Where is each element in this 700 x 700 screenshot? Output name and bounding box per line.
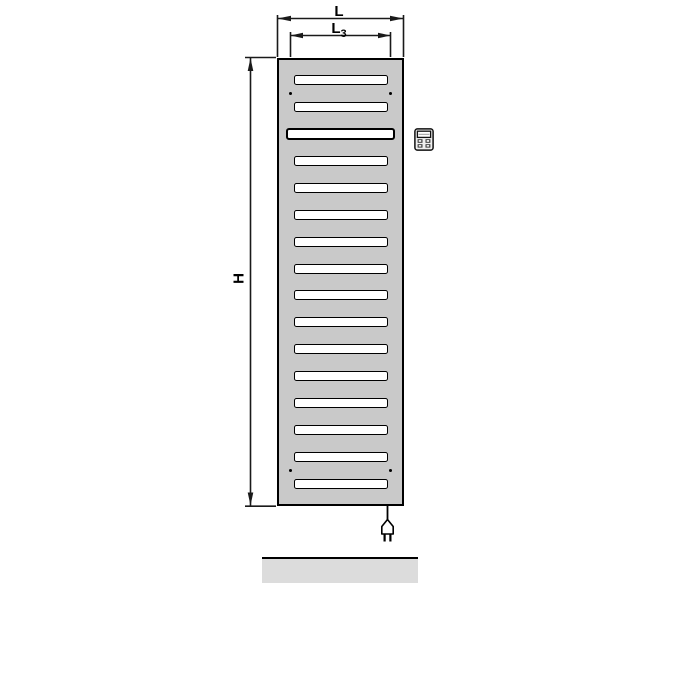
radiator-slot xyxy=(294,210,388,220)
dim-label-overall-height: H xyxy=(232,266,247,292)
radiator-slot xyxy=(294,290,388,300)
floor-baseboard xyxy=(262,557,418,583)
radiator-slot xyxy=(294,344,388,354)
radiator-slot xyxy=(294,479,388,489)
power-plug-icon xyxy=(382,506,393,542)
mounting-dot xyxy=(389,92,392,95)
mounting-dot xyxy=(289,469,292,472)
mounting-dot xyxy=(389,469,392,472)
radiator-slot xyxy=(294,183,388,193)
dimension-h xyxy=(245,58,276,507)
label-l3-subscript: 3 xyxy=(341,28,347,40)
radiator-slot xyxy=(294,264,388,274)
radiator-slot xyxy=(294,371,388,381)
dim-label-overall-width: L xyxy=(326,4,352,19)
radiator-slot-wide xyxy=(286,128,395,140)
radiator-slot xyxy=(294,102,388,112)
radiator-body xyxy=(277,58,404,506)
radiator-slot xyxy=(294,425,388,435)
radiator-slot xyxy=(294,317,388,327)
radiator-slot xyxy=(294,398,388,408)
radiator-slot xyxy=(294,156,388,166)
dimension-h-arrows xyxy=(248,58,254,506)
radiator-slot xyxy=(294,237,388,247)
radiator-slot xyxy=(294,452,388,462)
control-unit-icon xyxy=(414,128,434,151)
dim-label-inner-width: L3 xyxy=(324,21,354,36)
mounting-dot xyxy=(289,92,292,95)
label-l3-text: L xyxy=(331,20,340,37)
drawing-canvas: L L3 H xyxy=(0,0,700,700)
label-h-text: H xyxy=(231,273,248,284)
label-l-text: L xyxy=(334,3,343,20)
radiator-slot xyxy=(294,75,388,85)
